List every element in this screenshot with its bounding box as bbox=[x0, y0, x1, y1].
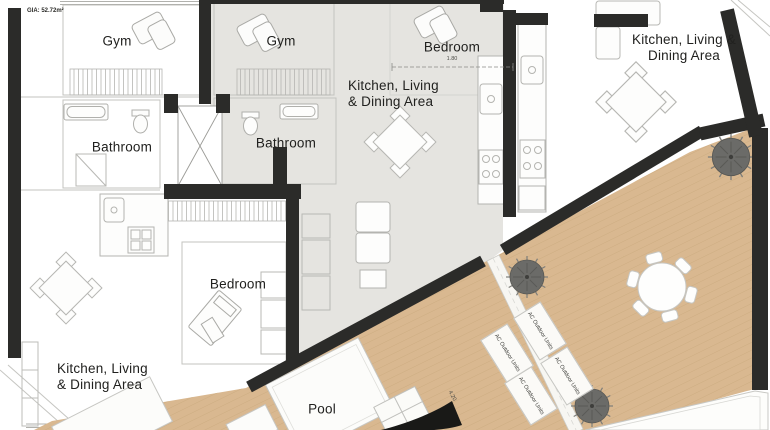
elevator-shaft bbox=[178, 106, 222, 186]
room-label-gym-mid: Gym bbox=[266, 34, 295, 49]
room-label-bedroom-top: Bedroom bbox=[424, 40, 480, 55]
bathtub-icon bbox=[64, 104, 108, 120]
room-label-kld-bottom-left: Kitchen, Living & Dining Area bbox=[57, 361, 152, 393]
ac-unit-label: AC Outdoor Units bbox=[517, 376, 545, 416]
dimension-label-1-80: 1.80 bbox=[447, 56, 458, 62]
room-label-kld-mid: Kitchen, Living & Dining Area bbox=[348, 78, 440, 110]
room-label-gym-left: Gym bbox=[102, 34, 131, 49]
ac-unit-label: AC Outdoor Units bbox=[493, 333, 521, 373]
room-label-kld-right: Kitchen, Living & Dining Area bbox=[628, 32, 740, 64]
toilet-icon bbox=[132, 110, 149, 133]
exercise-machine-icon bbox=[131, 11, 177, 51]
room-label-pool: Pool bbox=[308, 402, 336, 417]
toilet-icon bbox=[242, 112, 259, 135]
floor-plan: GIA: 52.72m² Gym Gym Bedroom Bathroom Ba… bbox=[0, 0, 770, 430]
ac-unit-label: AC Outdoor Units bbox=[553, 356, 581, 396]
dining-table-icon bbox=[30, 252, 102, 324]
room-label-bathroom-mid: Bathroom bbox=[256, 136, 316, 151]
gia-label: GIA: 52.72m² bbox=[27, 8, 64, 14]
bed-icon bbox=[188, 290, 244, 348]
kitchen-counter-left bbox=[100, 194, 168, 256]
room-label-bathroom-left: Bathroom bbox=[92, 140, 152, 155]
bathtub-icon bbox=[280, 104, 318, 119]
sofa-icon bbox=[356, 202, 390, 288]
room-label-bedroom-mid: Bedroom bbox=[210, 277, 266, 292]
ac-unit-label: AC Outdoor Units bbox=[526, 311, 554, 351]
kitchen-counter-mid bbox=[478, 56, 504, 204]
dining-table-icon bbox=[596, 62, 676, 142]
shower-icon bbox=[76, 154, 106, 186]
kitchen-counter-right bbox=[518, 24, 546, 212]
